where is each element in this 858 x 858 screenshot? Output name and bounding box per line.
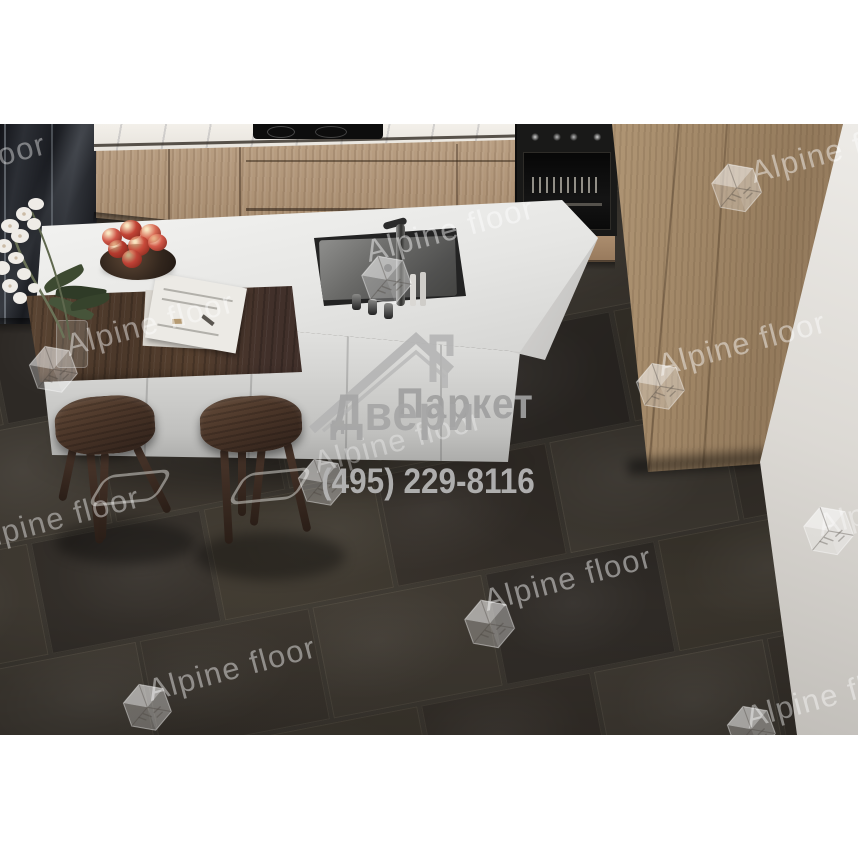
product-image-canvas: Alpine floorAlpine floorAlpine floorAlpi… (0, 0, 858, 858)
logo-subtitle: и Двери (330, 412, 353, 438)
logo-phone: (495) 229-8116 (300, 462, 556, 502)
brand-logo-watermark: Паркет и Двери (495) 229-8116 (0, 124, 858, 735)
logo-subtitle-main: Двери (330, 389, 475, 438)
kitchen-photo: Alpine floorAlpine floorAlpine floorAlpi… (0, 124, 858, 735)
